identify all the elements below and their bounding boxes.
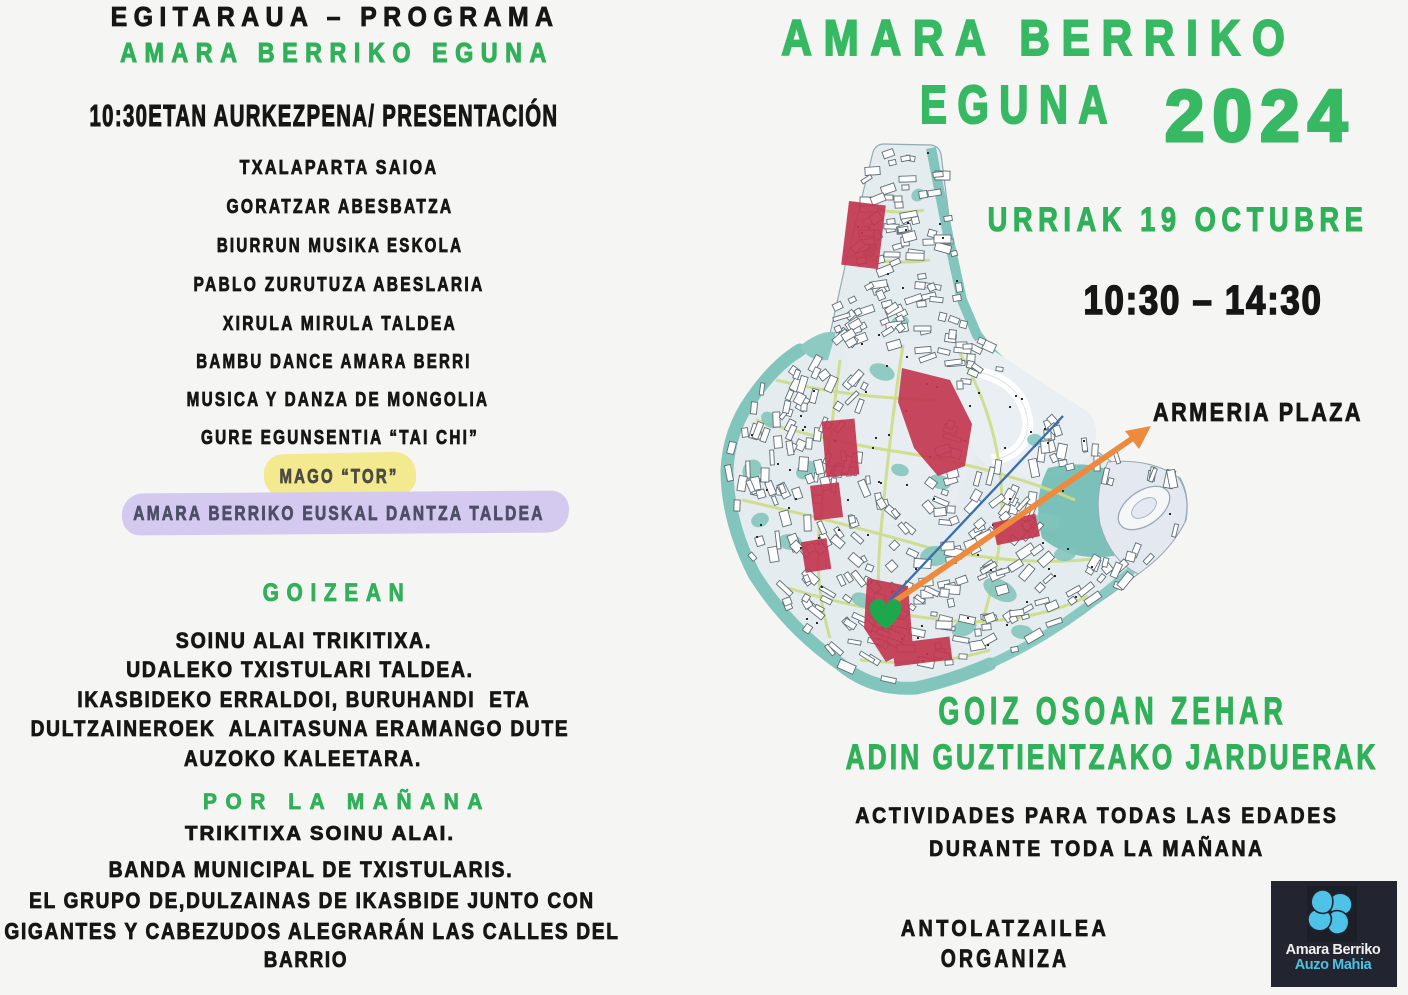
svg-text:Amara Berriko: Amara Berriko — [1286, 942, 1381, 958]
svg-text:Auzo Mahia: Auzo Mahia — [1295, 957, 1373, 973]
